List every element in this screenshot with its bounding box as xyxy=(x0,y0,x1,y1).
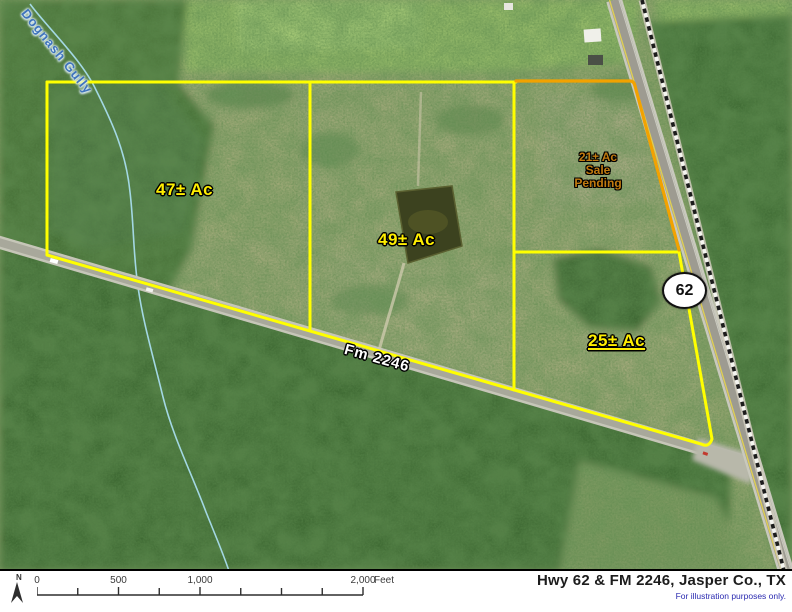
highway-62-shield: 62 xyxy=(662,272,707,309)
north-arrow: N xyxy=(7,574,27,606)
highway-62-number: 62 xyxy=(676,282,694,300)
aerial-map: Dognash Gully 47± Ac 49± Ac 25± Ac 21± A… xyxy=(0,0,792,571)
parcel-49-label: 49± Ac xyxy=(378,230,435,250)
parcel-21-pending: Pending xyxy=(550,177,646,190)
scale-unit-label: Feet xyxy=(374,575,394,586)
parcel-21-label: 21± Ac Sale Pending xyxy=(550,151,646,190)
scale-label-1000: 1,000 xyxy=(187,575,212,586)
map-title: Hwy 62 & FM 2246, Jasper Co., TX xyxy=(537,572,786,589)
screenshot-root: Dognash Gully 47± Ac 49± Ac 25± Ac 21± A… xyxy=(0,0,792,612)
scale-label-2000: 2,000 xyxy=(350,575,375,586)
parcel-47-label: 47± Ac xyxy=(156,180,213,200)
scale-label-500: 500 xyxy=(110,575,127,586)
parcel-25-label: 25± Ac xyxy=(588,331,645,351)
north-arrow-label: N xyxy=(16,573,22,582)
scale-bar: 0 500 1,000 2,000 Feet xyxy=(37,573,437,603)
disclaimer-text: For illustration purposes only. xyxy=(676,591,786,601)
map-footer: N 0 500 xyxy=(0,569,792,612)
scale-label-0: 0 xyxy=(34,575,40,586)
